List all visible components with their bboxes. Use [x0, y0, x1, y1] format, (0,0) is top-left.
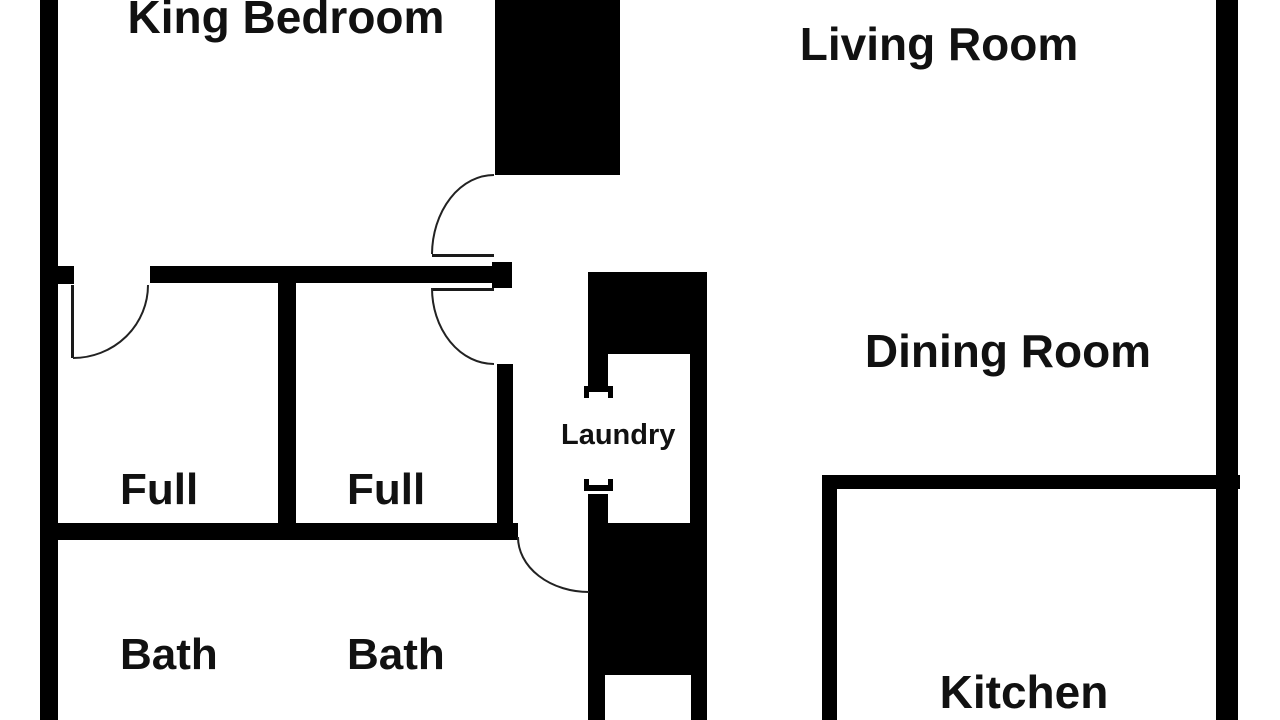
wall-laundry-right [690, 354, 707, 523]
door-arc-king-bedroom [432, 175, 494, 254]
wall-laundry-top-block [588, 272, 707, 354]
label-full-bath-1-line1: Full [120, 462, 218, 517]
wall-bath2-right [497, 364, 513, 540]
laundry-jamb-bottom-tick-right [608, 479, 613, 485]
wall-exterior-right [1216, 0, 1238, 720]
laundry-jamb-top-tick-left [584, 392, 589, 398]
wall-laundry-bottom-block [588, 523, 707, 675]
wall-bedroom-bottom [150, 266, 492, 283]
label-dining-room: Dining Room [865, 324, 1151, 379]
wall-laundry-left-upper [588, 354, 608, 387]
wall-kitchen-left [822, 475, 837, 720]
label-full-bath-2: Full Bath [347, 352, 445, 720]
label-king-bedroom: King Bedroom [128, 0, 445, 45]
label-full-bath-2-line1: Full [347, 462, 445, 517]
door-leaf-full-bath-2 [432, 288, 494, 291]
label-laundry: Laundry [561, 419, 675, 452]
laundry-jamb-top-tick-right [608, 392, 613, 398]
wall-kitchen-top [822, 475, 1240, 489]
label-full-bath-1-line2: Bath [120, 627, 218, 682]
door-leaf-king-bedroom [432, 254, 494, 257]
label-kitchen: Kitchen [940, 665, 1109, 720]
label-full-bath-1: Full Bath [120, 352, 218, 720]
door-arc-full-bath-1 [73, 285, 148, 358]
door-leaf-full-bath-1 [71, 285, 74, 358]
door-arc-hallway [518, 537, 589, 592]
wall-laundry-left-strip-bottom [588, 675, 605, 720]
wall-exterior-left [40, 0, 58, 720]
wall-laundry-right-strip-bottom [691, 675, 707, 720]
label-full-bath-2-line2: Bath [347, 627, 445, 682]
laundry-jamb-bottom-tick-left [584, 479, 589, 485]
floorplan-canvas: King Bedroom Living Room Dining Room Ful… [0, 0, 1280, 720]
label-living-room: Living Room [800, 17, 1079, 72]
laundry-jamb-bottom-bar [584, 485, 613, 491]
wall-door-pillar [492, 262, 512, 288]
wall-laundry-left-lower [588, 494, 608, 523]
wall-bedroom-living-divider [495, 0, 620, 175]
wall-bath-divider [278, 283, 296, 523]
wall-bedroom-bottom-stub [56, 266, 74, 284]
